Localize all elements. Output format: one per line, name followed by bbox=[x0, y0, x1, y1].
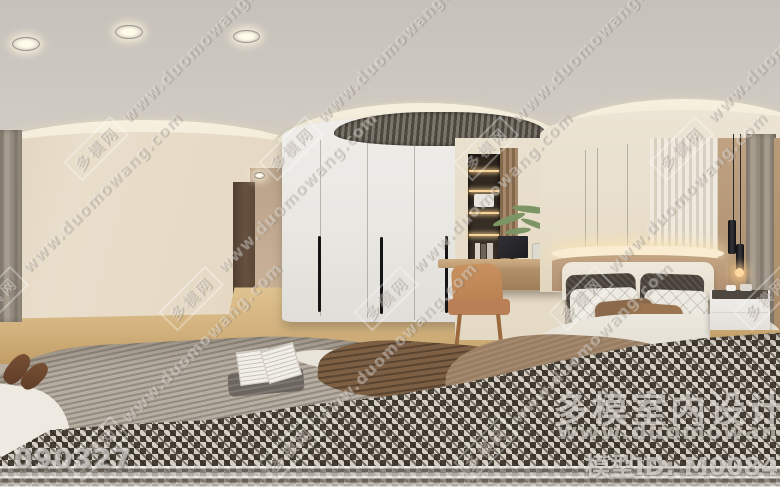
footer-site-url: www.duomowang.com bbox=[557, 420, 780, 445]
wardrobe-door-seam bbox=[414, 128, 415, 320]
hallway-light-icon bbox=[254, 172, 265, 179]
book bbox=[481, 244, 486, 260]
book bbox=[475, 243, 480, 260]
recessed-light-icon bbox=[12, 37, 40, 51]
recessed-light-icon bbox=[233, 30, 260, 43]
photo-id-stamp: 090327 bbox=[14, 444, 133, 475]
wardrobe-door-seam bbox=[367, 132, 368, 318]
recessed-light-icon bbox=[115, 25, 143, 39]
wardrobe-handle bbox=[318, 236, 321, 312]
monitor bbox=[498, 236, 528, 258]
footer-model-id: 模型ID: M0084305 bbox=[585, 447, 780, 483]
shelf-light-icon bbox=[469, 234, 499, 236]
pendant-light-icon bbox=[728, 220, 736, 254]
pendant-bulb-glow bbox=[735, 268, 744, 277]
teapot bbox=[740, 284, 752, 291]
book bbox=[487, 243, 493, 260]
coffee-cup bbox=[726, 285, 736, 291]
panorama-bedroom-image: 多模网www.duomowang.com 多模网www.duomowang.co… bbox=[0, 0, 780, 487]
